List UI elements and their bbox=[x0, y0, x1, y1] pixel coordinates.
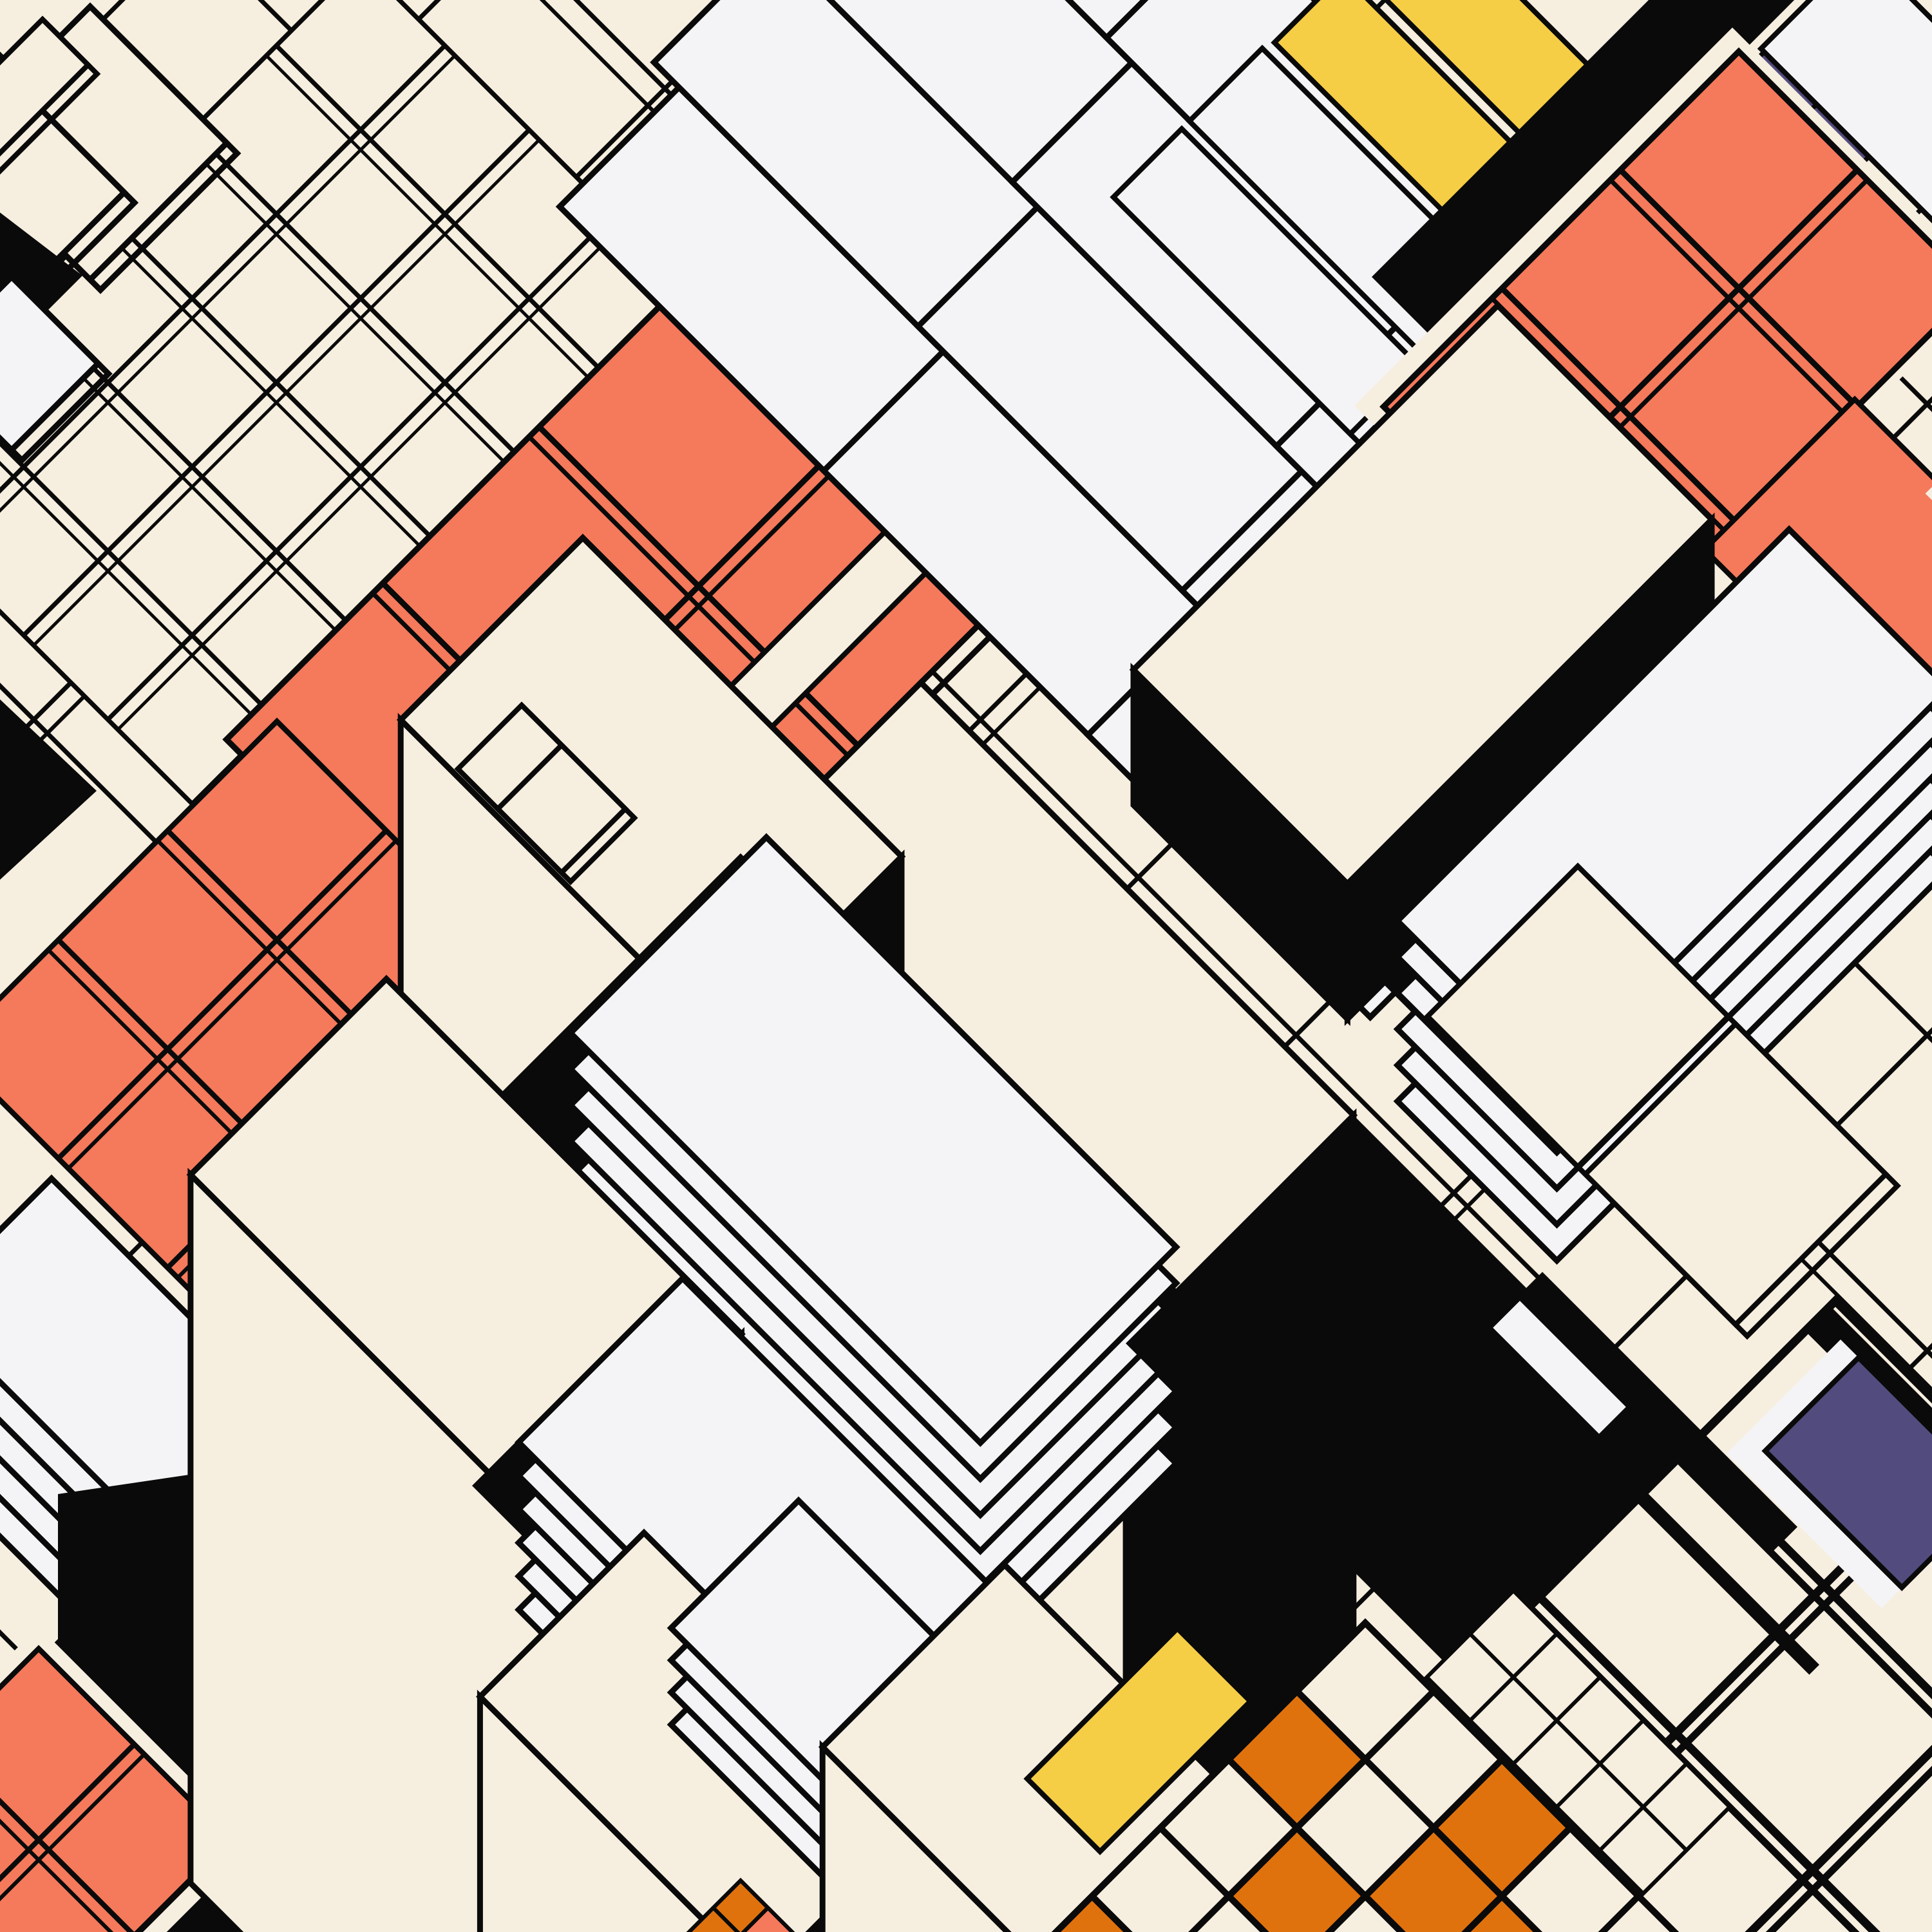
generative-isometric-artwork bbox=[0, 0, 1932, 1932]
artwork-canvas bbox=[0, 0, 1932, 1932]
